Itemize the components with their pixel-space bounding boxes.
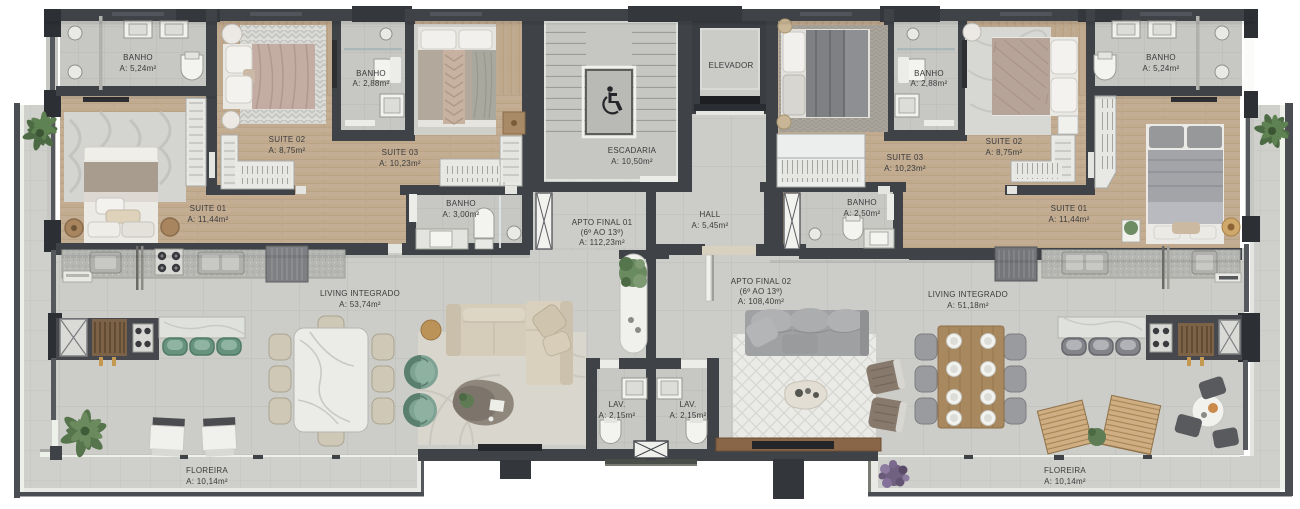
svg-text:BANHO: BANHO [446,199,476,208]
svg-text:BANHO: BANHO [847,198,877,207]
svg-text:A: 2,50m²: A: 2,50m² [844,209,881,218]
svg-text:A: 10,14m²: A: 10,14m² [1044,477,1086,486]
svg-text:BANHO: BANHO [123,53,153,62]
svg-text:BANHO: BANHO [1146,53,1176,62]
svg-text:SUITE 01: SUITE 01 [190,204,227,213]
svg-text:BANHO: BANHO [356,69,386,78]
svg-text:ESCADARIA: ESCADARIA [608,146,657,155]
svg-text:APTO FINAL 01: APTO FINAL 01 [572,218,633,227]
svg-text:A: 108,40m²: A: 108,40m² [738,297,784,306]
svg-text:A: 8,75m²: A: 8,75m² [269,146,306,155]
svg-text:A: 3,00m²: A: 3,00m² [443,210,480,219]
svg-text:A: 53,74m²: A: 53,74m² [339,300,381,309]
svg-text:(6º AO 13º): (6º AO 13º) [581,228,624,237]
svg-text:BANHO: BANHO [914,69,944,78]
svg-text:SUITE 02: SUITE 02 [986,137,1023,146]
svg-text:A: 51,18m²: A: 51,18m² [947,301,989,310]
svg-text:A: 10,23m²: A: 10,23m² [884,164,926,173]
svg-text:A: 5,24m²: A: 5,24m² [1143,64,1180,73]
svg-text:A: 10,14m²: A: 10,14m² [186,477,228,486]
svg-text:A: 2,88m²: A: 2,88m² [353,79,390,88]
svg-text:SUITE 03: SUITE 03 [382,148,419,157]
svg-text:A: 5,24m²: A: 5,24m² [120,64,157,73]
svg-text:LAV.: LAV. [679,400,696,409]
svg-text:A: 10,23m²: A: 10,23m² [379,159,421,168]
svg-text:ELEVADOR: ELEVADOR [709,61,754,70]
svg-text:APTO FINAL 02: APTO FINAL 02 [731,277,792,286]
svg-text:LIVING INTEGRADO: LIVING INTEGRADO [320,289,400,298]
svg-text:FLOREIRA: FLOREIRA [1044,466,1086,475]
svg-text:A: 10,50m²: A: 10,50m² [611,157,653,166]
svg-text:SUITE 02: SUITE 02 [269,135,306,144]
svg-text:A: 8,75m²: A: 8,75m² [986,148,1023,157]
svg-text:A: 2,15m²: A: 2,15m² [599,411,636,420]
svg-text:A: 11,44m²: A: 11,44m² [187,215,228,224]
svg-text:A: 2,88m²: A: 2,88m² [911,79,948,88]
svg-text:A: 11,44m²: A: 11,44m² [1048,215,1089,224]
svg-text:SUITE 03: SUITE 03 [887,153,924,162]
svg-text:A: 2,15m²: A: 2,15m² [670,411,707,420]
svg-text:LIVING INTEGRADO: LIVING INTEGRADO [928,290,1008,299]
svg-text:A: 5,45m²: A: 5,45m² [692,221,729,230]
svg-text:FLOREIRA: FLOREIRA [186,466,228,475]
svg-text:(6º AO 13º): (6º AO 13º) [740,287,783,296]
svg-text:A: 112,23m²: A: 112,23m² [579,238,625,247]
svg-text:HALL: HALL [699,210,720,219]
svg-text:LAV.: LAV. [608,400,625,409]
svg-text:SUITE 01: SUITE 01 [1051,204,1088,213]
